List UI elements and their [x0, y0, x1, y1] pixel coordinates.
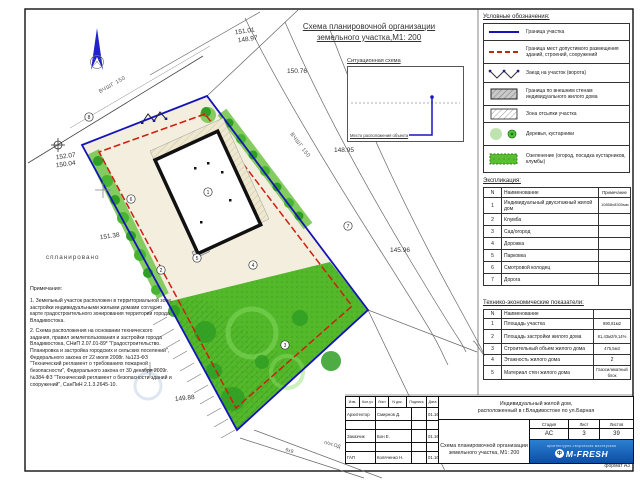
red-dashed-line-icon — [484, 45, 524, 59]
road-edge — [368, 310, 477, 352]
cell-name: Строительный объем жилого дома — [502, 344, 594, 355]
trees-icon — [484, 127, 524, 141]
sheets-label: Листов — [600, 420, 633, 428]
callout-number: 2 — [160, 268, 163, 274]
elevation-label: 150.76 — [287, 68, 307, 75]
callout-7: 7 — [344, 222, 352, 230]
situational-scheme-label: Место расположения объекта — [349, 133, 409, 138]
elevation-label: 149.88 — [175, 394, 196, 403]
cell-n: 1 — [484, 319, 502, 330]
callout-number: 8 — [88, 115, 91, 121]
cell-n: 4 — [484, 238, 502, 250]
callout-8: 8 — [85, 113, 93, 121]
cell-n: 5 — [484, 366, 502, 380]
callout-4: 4 — [249, 261, 257, 269]
cell-n: 3 — [484, 344, 502, 355]
legend-box: Граница участка Граница мест допустимого… — [483, 23, 630, 173]
cell-n: 2 — [484, 214, 502, 226]
callout-2: 2 — [157, 266, 165, 274]
table-row: 5Материал стен жилого домаГазосиликатный… — [484, 366, 631, 380]
cell-name: Материал стен жилого дома — [502, 366, 594, 380]
legend-label: Зона отсыпки участка — [524, 110, 629, 118]
sheets-value: 39 — [600, 429, 633, 439]
stamp-header-cell: Изм. — [346, 397, 360, 407]
sheet-label: Лист — [569, 420, 600, 428]
cell-note — [599, 262, 631, 274]
header-cell: Наименование — [502, 310, 594, 319]
elevation-label: 148.97 — [237, 35, 258, 45]
stage-label: Стадия — [530, 420, 569, 428]
cell-value: 2 — [594, 355, 631, 366]
logo-text: M-FRESH — [566, 449, 608, 459]
stamp-signature — [412, 452, 427, 463]
cell-n: 5 — [484, 250, 502, 262]
stamp-header-row: Изм. Кол.уч Лист N док. Подпись Дата — [346, 397, 438, 408]
notes: Примечания: 1. Земельный участок располо… — [30, 286, 172, 391]
table-row: 2Клумба — [484, 214, 631, 226]
company-logo: архитектурно-творческая мастерская Ф M-F… — [530, 440, 633, 463]
stamp-stage-block: Стадия Лист Листов АС 3 39 архитектурно-… — [530, 420, 633, 463]
stamp-signature — [412, 408, 427, 420]
sheet-value: 3 — [569, 429, 600, 439]
north-arrow — [91, 28, 104, 70]
explication: Экспликация: N Наименование Примечание 1… — [483, 178, 631, 286]
legend-row: Граница по внешним стенам индивидуальног… — [484, 83, 629, 106]
situational-scheme-box — [347, 66, 464, 142]
table-row: 3Строительный объем жилого дома475,5м3 — [484, 344, 631, 355]
stage-value: АС — [530, 429, 569, 439]
road-label: 6х9 — [285, 447, 295, 455]
road-label: п/эт.ОД — [323, 440, 341, 451]
legend-label: Граница участка — [524, 28, 629, 36]
stage-header-row: Стадия Лист Листов — [530, 420, 633, 429]
cell-name: Сад/огород — [502, 226, 599, 238]
legend: Условные обозначения: Граница участка Гр… — [483, 14, 630, 173]
header-cell: Наименование — [502, 188, 599, 198]
table-row: 4Дорожка — [484, 238, 631, 250]
stamp-sheet-title-line1: Схема планировочной организации — [439, 443, 529, 450]
green-fill-icon — [484, 152, 524, 166]
cell-value: 475,5м3 — [594, 344, 631, 355]
table-row: 1Индивидуальный двухэтажный жилой дом108… — [484, 198, 631, 214]
legend-row: Заезд на участок (ворота) — [484, 64, 629, 83]
logo-icon: Ф — [555, 449, 564, 458]
tep-title: Технико-экономические показатели: — [483, 300, 631, 306]
stage-values-row: АС 3 39 — [530, 429, 633, 440]
stamp-person: Смирнов Д. — [376, 408, 412, 420]
legend-label: Озеленение (огород, посадка кустарников,… — [524, 152, 629, 167]
sheet-title-line2: земельного участка,М1: 200 — [263, 33, 475, 44]
table-row: 2Площадь застройки жилого дома81,43м2/9,… — [484, 330, 631, 344]
legend-row: Зона отсыпки участка — [484, 106, 629, 123]
cell-name: Этажность жилого дома — [502, 355, 594, 366]
table-row: 6Смотровой колодец — [484, 262, 631, 274]
pipe-label: ВЧШГ 150 — [98, 75, 127, 95]
object-name-line1: Индивидуальный жилой дом, — [439, 401, 633, 408]
callout-number: 6 — [130, 197, 133, 203]
pipe-label: ВЧШГ 150 — [288, 132, 311, 159]
title-block: Изм. Кол.уч Лист N док. Подпись Дата Арх… — [345, 396, 634, 464]
table-row: 1Площадь участка890,81м2 — [484, 319, 631, 330]
situational-scheme-drawing — [348, 67, 463, 141]
explication-title: Экспликация: — [483, 178, 631, 184]
cell-name: Смотровой колодец — [502, 262, 599, 274]
stamp-date: 01.16 — [427, 408, 438, 420]
stamp-role: Архитектор — [346, 408, 376, 420]
stamp-role: ГАП — [346, 452, 376, 463]
cell-value: Газосиликатный блок — [594, 366, 631, 380]
stamp-header-cell: N док. — [389, 397, 407, 407]
cell-value: 81,43м2/9,14% — [594, 330, 631, 344]
cell-name: Клумба — [502, 214, 599, 226]
cell-n: 7 — [484, 274, 502, 286]
stamp-row-blank — [346, 443, 438, 452]
cell-note — [599, 226, 631, 238]
cell-note — [599, 274, 631, 286]
cell-name: Парковка — [502, 250, 599, 262]
callout-1: 1 — [204, 188, 212, 196]
gray-hatch-icon — [484, 87, 524, 101]
stamp-revision-table: Изм. Кол.уч Лист N док. Подпись Дата Арх… — [346, 397, 439, 463]
cell-value: 890,81м2 — [594, 319, 631, 330]
sheet-title-line1: Схема планировочной организации — [263, 22, 475, 33]
stamp-person: Коляченко Н. — [376, 452, 412, 463]
cell-note: 10858х8300мм — [599, 198, 631, 214]
callout-6: 6 — [127, 195, 135, 203]
stamp-right-section: Индивидуальный жилой дом, расположенный … — [439, 397, 633, 463]
stamp-role: Заказчик — [346, 430, 376, 442]
cell-name: Дорога — [502, 274, 599, 286]
stamp-row-blank — [346, 421, 438, 430]
stamp-object-name: Индивидуальный жилой дом, расположенный … — [439, 397, 633, 420]
stamp-person: Бон Е. — [376, 430, 412, 442]
drawing-sheet: 1 2 3 4 5 6 7 8 151.01 148.97 150.76 148… — [0, 0, 640, 480]
table-row: 5Парковка — [484, 250, 631, 262]
cell-note — [599, 238, 631, 250]
callout-5: 5 — [193, 254, 201, 262]
stamp-signature — [412, 430, 427, 442]
stamp-header-cell: Кол.уч — [360, 397, 376, 407]
cell-name: Площадь участка — [502, 319, 594, 330]
cell-name: Площадь застройки жилого дома — [502, 330, 594, 344]
object-name-line2: расположенный в г.Владивостоке по ул.Бар… — [439, 408, 633, 415]
legend-label: Заезд на участок (ворота) — [524, 69, 629, 77]
tep-table: N Наименование 1Площадь участка890,81м2 … — [483, 309, 631, 380]
callout-3: 3 — [281, 341, 289, 349]
gate-zigzag-icon — [484, 66, 524, 80]
cell-n: 6 — [484, 262, 502, 274]
elevation-label: 150.04 — [55, 160, 76, 170]
elevation-label: 148.95 — [334, 147, 354, 154]
stamp-row: ГАП Коляченко Н. 01.16 — [346, 452, 438, 463]
elevation-label: 145.96 — [390, 247, 410, 254]
legend-label: Деревья, кустарники — [524, 130, 629, 138]
legend-label: Граница мест допустимого размещения здан… — [524, 45, 629, 60]
callout-number: 1 — [207, 190, 210, 196]
header-cell — [594, 310, 631, 319]
callout-number: 7 — [347, 224, 350, 230]
table-row: 7Дорога — [484, 274, 631, 286]
legend-row: Граница мест допустимого размещения здан… — [484, 41, 629, 64]
table-header-row: N Наименование — [484, 310, 631, 319]
table-header-row: N Наименование Примечание — [484, 188, 631, 198]
stamp-sheet-title: Схема планировочной организации земельно… — [439, 420, 530, 463]
situational-scheme-title: Ситуационная схема — [347, 58, 401, 64]
header-cell: N — [484, 188, 502, 198]
stamp-sheet-title-line2: земельного участка, М1: 200 — [439, 450, 529, 457]
format-label: формат А3 — [560, 463, 630, 469]
legend-title: Условные обозначения: — [483, 14, 630, 20]
note-item: 1. Земельный участок расположен в террит… — [30, 298, 172, 325]
notes-title: Примечания: — [30, 286, 172, 293]
header-cell: N — [484, 310, 502, 319]
tep: Технико-экономические показатели: N Наим… — [483, 300, 631, 380]
stamp-date: 01.16 — [427, 452, 438, 463]
callout-number: 5 — [196, 256, 199, 262]
cell-n: 2 — [484, 330, 502, 344]
legend-row: Деревья, кустарники — [484, 123, 629, 146]
stamp-row: Заказчик Бон Е. 01.16 — [346, 430, 438, 443]
cell-n: 3 — [484, 226, 502, 238]
legend-label: Граница по внешним стенам индивидуальног… — [524, 87, 629, 102]
table-row: 3Сад/огород — [484, 226, 631, 238]
legend-row: Граница участка — [484, 24, 629, 41]
callout-number: 3 — [284, 343, 287, 349]
sheet-title: Схема планировочной организации земельно… — [263, 22, 475, 44]
stamp-date: 01.16 — [427, 430, 438, 442]
legend-row: Озеленение (огород, посадка кустарников,… — [484, 146, 629, 172]
elevation-label: 151.38 — [99, 232, 120, 242]
explication-table: N Наименование Примечание 1Индивидуальны… — [483, 187, 631, 286]
cell-note — [599, 250, 631, 262]
note-item: 2. Схема расположения на основании техни… — [30, 328, 172, 388]
stamp-header-cell: Дата — [427, 397, 438, 407]
planned-label: спланировано — [46, 254, 100, 261]
cell-name: Дорожка — [502, 238, 599, 250]
callout-number: 4 — [252, 263, 255, 269]
cell-note — [599, 214, 631, 226]
cell-n: 4 — [484, 355, 502, 366]
cell-name: Индивидуальный двухэтажный жилой дом — [502, 198, 599, 214]
stamp-header-cell: Подпись — [407, 397, 427, 407]
cell-n: 1 — [484, 198, 502, 214]
stamp-header-cell: Лист — [376, 397, 389, 407]
header-cell: Примечание — [599, 188, 631, 198]
boundary-line-icon — [484, 25, 524, 39]
stamp-row: Архитектор Смирнов Д. 01.16 — [346, 408, 438, 421]
benchmark-icon — [51, 138, 65, 152]
diag-hatch-icon — [484, 107, 524, 121]
table-row: 4Этажность жилого дома2 — [484, 355, 631, 366]
